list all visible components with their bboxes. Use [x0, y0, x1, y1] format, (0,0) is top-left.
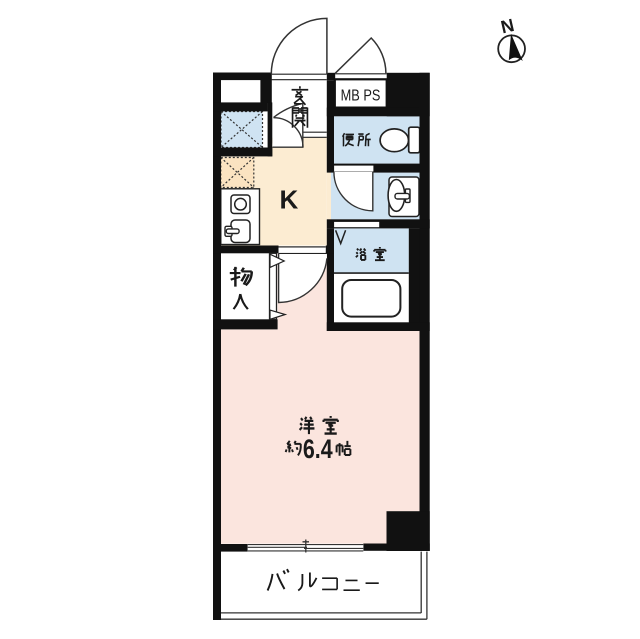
svg-text:6.4: 6.4 — [303, 434, 333, 464]
svg-text:MB PS: MB PS — [341, 88, 381, 105]
svg-text:K: K — [280, 184, 299, 214]
